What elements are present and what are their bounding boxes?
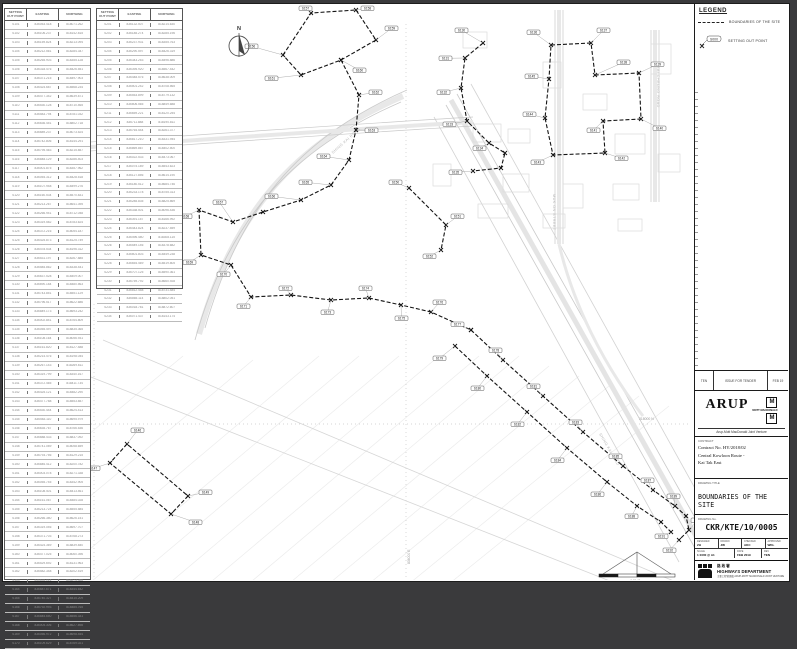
table-row: S129836637.528818409.007 (5, 272, 90, 281)
table-cell: 836319.799 (28, 373, 60, 376)
table-cell: S104 (5, 50, 28, 53)
table-row: S233836018.781818872.607 (97, 304, 182, 313)
table-cell: 818779.132 (151, 94, 182, 97)
table-cell: S148 (5, 445, 28, 448)
table-cell: 818567.442 (151, 68, 182, 71)
table-cell: S109 (5, 95, 28, 98)
table-cell: S134 (5, 319, 28, 322)
table-cell: S146 (5, 427, 28, 430)
table-cell: 836265.903 (28, 59, 60, 62)
table-cell: 836654.469 (120, 262, 152, 265)
table-cell: S152 (5, 481, 28, 484)
table-row: S105836265.903818355.128 (5, 57, 90, 66)
table-cell: 818284.347 (59, 50, 90, 53)
table-row: S146836635.767818766.536 (5, 425, 90, 434)
table-cell: S139 (5, 364, 28, 367)
table-row: S150836846.412818200.782 (5, 460, 90, 469)
table-cell: S226 (97, 244, 120, 247)
table-row: S127836531.197818267.885 (5, 254, 90, 263)
table-cell: 836478.534 (28, 248, 60, 251)
table-cell: S155 (5, 508, 28, 511)
table-cell: 836477.342 (28, 95, 60, 98)
table-cell: S157 (5, 526, 28, 529)
table-cell: 836530.444 (28, 409, 60, 412)
table-row: S218836127.856818614.190 (97, 171, 182, 180)
signature-fields: DESIGNEDZH DRAWNJW CHECKEDAKC APPROVEDWK… (695, 538, 788, 560)
table-cell: 836659.221 (120, 112, 152, 115)
table-row: S221836285.835818825.869 (97, 198, 182, 207)
table-row: S145836583.110818695.979 (5, 416, 90, 425)
table-cell: S205 (97, 59, 120, 62)
table-cell: 836549.146 (120, 244, 152, 247)
table-row: S231836812.458818731.484 (97, 286, 182, 295)
table-cell: S115 (5, 149, 28, 152)
table-cell: 836425.121 (28, 391, 60, 394)
setting-out-tag-label: S177 (454, 323, 462, 327)
table-cell: S125 (5, 239, 28, 242)
table-cell: 818415.209 (59, 597, 90, 600)
table-cell: S141 (5, 382, 28, 385)
table-row: S126836478.534818196.312 (5, 245, 90, 254)
table-row: S228836654.469818519.805 (97, 260, 182, 269)
table-cell: S168 (5, 624, 28, 627)
table-row: S234836071.437818143.174 (97, 313, 182, 322)
table-cell: 818639.871 (59, 95, 90, 98)
table-cell: 818198.044 (59, 355, 90, 358)
table-cell: 818129.215 (59, 454, 90, 457)
table-cell: S111 (5, 113, 28, 116)
setting-out-tag-label: S157 (302, 7, 310, 11)
table-cell: S120 (5, 194, 28, 197)
table-row: S123836319.582818783.624 (5, 218, 90, 227)
setting-out-tag-label: S158 (364, 7, 372, 11)
building-outline (583, 94, 607, 110)
table-cell: 818096.436 (151, 209, 182, 212)
table-row: S107836371.215818497.903 (5, 75, 90, 84)
title-block-panel: LEGEND BOUNDARIES OF THE SITE S000 SETTI… (694, 4, 788, 580)
joint-venture-line: Arup-Mott MacDonald Joint Venture (698, 428, 785, 434)
setting-out-tag-label: S184 (554, 459, 562, 463)
table-cell: 836106.237 (28, 32, 60, 35)
table-cell: 818825.869 (151, 200, 182, 203)
contract-number: Contract No. HY/2018/02 (698, 445, 785, 450)
scale-bar-segment (599, 574, 618, 577)
table-cell: S231 (97, 289, 120, 292)
table-cell: 818660.928 (151, 280, 182, 283)
table-row: S132836796.517818622.686 (5, 299, 90, 308)
table-cell: 818764.809 (59, 319, 90, 322)
table-row: S125836425.873818125.749 (5, 236, 90, 245)
table-cell: 836635.014 (28, 579, 60, 582)
table-cell: S163 (5, 579, 28, 582)
table-cell: 836865.114 (120, 297, 152, 300)
table-cell: 818344.642 (59, 588, 90, 591)
table-row: S204836290.597818426.319 (97, 48, 182, 57)
table-cell: 836160.534 (28, 194, 60, 197)
revision-date: FEB 19 (768, 371, 788, 390)
table-cell: S211 (97, 112, 120, 115)
table-row: S117836001.875818357.962 (5, 165, 90, 174)
table-cell: S221 (97, 200, 120, 203)
column-header: EASTING (119, 9, 151, 20)
table-cell: 818142.815 (59, 32, 90, 35)
checked-value: AKC (744, 543, 763, 547)
table-cell: 818125.749 (59, 239, 90, 242)
table-cell: 818402.500 (151, 147, 182, 150)
table-cell: S121 (5, 203, 28, 206)
table-cell: 836584.862 (28, 266, 60, 269)
setting-out-tag-label: S152 (426, 255, 434, 259)
building-outline (433, 164, 451, 186)
table-cell: S201 (97, 23, 120, 26)
table-cell: S143 (5, 400, 28, 403)
table-cell: 818357.962 (59, 167, 90, 170)
setting-out-tag-label: S140 (656, 127, 664, 131)
table-cell: S170 (5, 642, 28, 645)
table-row: S140836319.799818340.167 (5, 371, 90, 380)
table-cell: 836371.215 (28, 77, 60, 80)
table-cell: S147 (5, 436, 28, 439)
table-cell: S142 (5, 391, 28, 394)
table-row: S217836075.189818543.623 (97, 163, 182, 172)
table-cell: 818553.857 (59, 400, 90, 403)
table-row: S110836530.128818710.465 (5, 102, 90, 111)
table-cell: 818355.763 (151, 41, 182, 44)
table-cell: 836214.476 (28, 355, 60, 358)
reclamation-hatch-line (199, 356, 479, 580)
table-row: S206836395.920818567.442 (97, 65, 182, 74)
table-cell: 818802.051 (151, 297, 182, 300)
table-cell: S130 (5, 283, 28, 286)
table-row: S213836764.544818261.377 (97, 127, 182, 136)
setting-out-tag-label: S151 (454, 215, 462, 219)
table-cell: 818570.831 (59, 194, 90, 197)
table-cell: S136 (5, 337, 28, 340)
table-cell: S207 (97, 76, 120, 79)
setting-out-tag-label: S180 (474, 387, 482, 391)
setting-out-tag-label: S134 (476, 147, 484, 151)
table-cell: 818426.551 (59, 68, 90, 71)
column-header: SETTING OUT POINT (97, 9, 119, 20)
setting-out-tag-label: S142 (618, 157, 626, 161)
table-row: S102836106.237818142.815 (5, 30, 90, 39)
table-cell: S220 (97, 191, 120, 194)
table-cell: S113 (5, 131, 28, 134)
table-cell: S158 (5, 535, 28, 538)
table-cell: 836812.458 (120, 289, 152, 292)
designed-value: ZH (697, 543, 716, 547)
reclamation-hatch-line (79, 356, 359, 580)
setting-out-tag-label: S171 (240, 305, 248, 309)
table-cell: 836690.184 (28, 283, 60, 286)
setting-out-tag-label: S173 (324, 311, 332, 315)
table-row: S108836424.687818568.234 (5, 84, 90, 93)
table-row: S103836159.824818213.094 (5, 39, 90, 48)
scale-value: 1:1000 @ A1 (697, 553, 732, 557)
table-cell: 818839.840 (59, 544, 90, 547)
table-cell: 836185.274 (120, 32, 152, 35)
table-row: S211836659.221818120.254 (97, 109, 182, 118)
table-row: S163836635.014818273.086 (5, 577, 90, 586)
table-row: S201836132.507818214.630 (97, 21, 182, 30)
table-row: S209836553.899818779.132 (97, 92, 182, 101)
table-cell: S223 (97, 218, 120, 221)
table-row: S149836793.756818129.215 (5, 452, 90, 461)
table-row: S214836817.210818331.944 (97, 136, 182, 145)
table-cell: 836817.210 (120, 138, 152, 141)
building-outline (463, 32, 487, 48)
table-row: S157836319.046818697.707 (5, 523, 90, 532)
setting-out-tag-label: S145 (528, 75, 536, 79)
table-cell: 836266.941 (28, 212, 60, 215)
table-cell: S217 (97, 165, 120, 168)
table-cell: 818071.262 (59, 23, 90, 26)
setting-out-tag-label: S176 (436, 301, 444, 305)
table-cell: S156 (5, 517, 28, 520)
table-cell: 836285.835 (120, 200, 152, 203)
table-cell: S228 (97, 262, 120, 265)
table-cell: 818482.290 (59, 391, 90, 394)
table-cell: 836107.948 (28, 185, 60, 188)
building-outline (618, 219, 642, 231)
table-cell: 818731.484 (151, 289, 182, 292)
contract-label: CONTRACT (698, 439, 785, 443)
table-cell: 836018.781 (120, 306, 152, 309)
legend-title: LEGEND (699, 8, 785, 14)
table-cell: 818267.885 (59, 257, 90, 260)
reclamation-hatch-line (119, 356, 399, 580)
drawing-number: CKR/KTE/10/0005 (698, 523, 785, 532)
table-cell: 836530.128 (28, 104, 60, 107)
table-cell: 818060.396 (59, 553, 90, 556)
table-cell: 836108.164 (28, 337, 60, 340)
table-row: S143836477.788818553.857 (5, 398, 90, 407)
site-boundary-chain (110, 444, 188, 514)
table-cell: 818131.963 (59, 562, 90, 565)
table-cell: S234 (97, 315, 120, 318)
table-cell: 836003.078 (28, 472, 60, 475)
setting-out-tag-label: S187 (644, 479, 652, 483)
table-cell: 818127.488 (59, 346, 90, 349)
drawing-title-block: DRAWING TITLE BOUNDARIES OF THE SITE (695, 478, 788, 514)
table-cell: 818237.559 (151, 227, 182, 230)
table-cell: 836290.597 (120, 50, 152, 53)
table-cell: S153 (5, 490, 28, 493)
table-cell: 836161.820 (28, 346, 60, 349)
reclamation-hatch-line (159, 356, 439, 580)
table-cell: S110 (5, 104, 28, 107)
table-cell: 836343.253 (120, 59, 152, 62)
table-cell: 836846.412 (28, 463, 60, 466)
table-cell: 836319.046 (28, 526, 60, 529)
table-cell: S123 (5, 221, 28, 224)
table-row: S170836109.629818769.021 (5, 640, 90, 649)
site-boundary-chain (471, 330, 689, 540)
table-cell: 818622.686 (59, 301, 90, 304)
setting-out-tag-label: S150 (392, 181, 400, 185)
road (559, 244, 643, 416)
table-cell: S114 (5, 140, 28, 143)
setting-out-tag-label: S172 (282, 287, 290, 291)
table-row: S169836056.972818698.454 (5, 631, 90, 640)
table-cell: 818638.009 (151, 76, 182, 79)
table-cell: 818473.067 (151, 156, 182, 159)
table-cell: 836371.703 (28, 535, 60, 538)
drawing-number-block: DRAWING No. CKR/KTE/10/0005 (695, 514, 788, 538)
table-row: S220836233.178818755.313 (97, 189, 182, 198)
table-cell: 818200.782 (59, 463, 90, 466)
table-cell: S129 (5, 275, 28, 278)
table-cell: S222 (97, 209, 120, 212)
table-cell: 818215.857 (59, 149, 90, 152)
table-cell: 836424.687 (28, 86, 60, 89)
table-2-body: S201836132.507818214.630S202836185.27481… (97, 21, 182, 322)
table-cell: 836425.873 (28, 239, 60, 242)
table-cell: S166 (5, 606, 28, 609)
table-cell: 818411.734 (59, 382, 90, 385)
table-cell: 818484.028 (59, 499, 90, 502)
table-cell: 836477.025 (28, 553, 60, 556)
table-cell: 818273.086 (59, 579, 90, 582)
setting-out-tag-label: S163 (368, 129, 376, 133)
table-cell: 818409.007 (59, 275, 90, 278)
building-outline (658, 154, 680, 172)
table-cell: S165 (5, 597, 28, 600)
table-cell: S229 (97, 271, 120, 274)
table-cell: 818378.682 (151, 244, 182, 247)
table-cell: S116 (5, 158, 28, 161)
table-row: S121836213.267818641.395 (5, 200, 90, 209)
table-row: S147836688.433818837.092 (5, 434, 90, 443)
table-cell: 818058.659 (59, 445, 90, 448)
table-cell: 836742.806 (28, 140, 60, 143)
table-cell: 818269.611 (59, 364, 90, 367)
site-boundary-chain (283, 10, 376, 75)
table-cell: S124 (5, 230, 28, 233)
table-row: S168836004.306818627.898 (5, 622, 90, 631)
table-cell: 818073.524 (59, 131, 90, 134)
table-cell: 836213.724 (28, 508, 60, 511)
table-cell: S210 (97, 103, 120, 106)
road (73, 370, 643, 580)
table-cell: S218 (97, 174, 120, 177)
table-cell: 818556.331 (59, 615, 90, 618)
table-cell: S204 (97, 50, 120, 53)
table-cell: 818196.312 (59, 248, 90, 251)
table-row: S227836601.803818449.238 (97, 251, 182, 260)
table-cell: S169 (5, 633, 28, 636)
table-cell: S209 (97, 94, 120, 97)
table-row: S113836689.237818073.524 (5, 129, 90, 138)
table-row: S134836002.841818764.809 (5, 317, 90, 326)
table-cell: S140 (5, 373, 28, 376)
table-cell: 836711.888 (120, 121, 152, 124)
setting-out-tag-label: S148 (192, 521, 200, 525)
table-cell: 818519.805 (151, 262, 182, 265)
table-cell: 836743.851 (28, 292, 60, 295)
arup-logo: ARUP (706, 397, 749, 413)
table-row: S154836161.067818484.028 (5, 496, 90, 505)
table-cell: 818835.365 (59, 328, 90, 331)
table-cell: S224 (97, 227, 120, 230)
table-row: S106836318.476818426.551 (5, 66, 90, 75)
table-cell: 818342.905 (59, 481, 90, 484)
setting-out-tag-label: S182 (514, 423, 522, 427)
table-cell: 836707.125 (120, 271, 152, 274)
table-cell: S112 (5, 122, 28, 125)
setting-out-tag-label: S131 (442, 57, 450, 61)
consultant-logo-block: ARUP M MOTT MACDONALD M Arup-Mott MacDon… (695, 390, 788, 436)
table-cell: 836477.788 (28, 400, 60, 403)
table-cell: 836212.561 (28, 50, 60, 53)
table-row: S151836003.078818271.338 (5, 469, 90, 478)
table-cell: 818166.992 (151, 218, 182, 221)
table-cell: 836796.517 (28, 301, 60, 304)
table-cell: 818056.931 (59, 337, 90, 340)
table-row: S210836606.565818849.688 (97, 101, 182, 110)
table-cell: 836075.189 (120, 165, 152, 168)
table-cell: S150 (5, 463, 28, 466)
table-cell: 818769.021 (59, 642, 90, 645)
table-cell: 836004.306 (28, 624, 60, 627)
setting-out-tag-label: S136 (530, 31, 538, 35)
table-row: S124836372.216818054.187 (5, 227, 90, 236)
table-cell: 818308.115 (151, 236, 182, 239)
table-cell: 836002.841 (28, 319, 60, 322)
table-row: S160836477.025818060.396 (5, 550, 90, 559)
road-name-label: MUK ON STREET (552, 194, 556, 231)
drawing-title: BOUNDARIES OF THE SITE (698, 493, 785, 509)
boundary-vertex-marker (659, 520, 663, 524)
table-cell: S167 (5, 615, 28, 618)
contract-area: Kai Tak East (698, 460, 785, 465)
table-cell: S214 (97, 138, 120, 141)
table-cell: 818449.238 (151, 253, 182, 256)
setting-out-tag-label: S149 (202, 491, 210, 495)
road (451, 100, 701, 545)
table-cell: 836443.824 (120, 227, 152, 230)
table-cell: 818543.623 (151, 165, 182, 168)
table-row: S131836743.851818551.129 (5, 290, 90, 299)
setting-out-tag-label: S161 (268, 77, 276, 81)
table-cell: 836636.451 (28, 122, 60, 125)
table-cell: 818695.979 (59, 418, 90, 421)
table-cell: S160 (5, 553, 28, 556)
table-cell: 818766.536 (59, 427, 90, 430)
table-row: S153836108.401818413.461 (5, 487, 90, 496)
setting-out-tag-label: S139 (654, 63, 662, 67)
table-cell: 818331.944 (151, 138, 182, 141)
setting-out-tag-label: S169 (186, 261, 194, 265)
scale-bar-segment (656, 574, 675, 577)
table-cell: 818590.361 (151, 271, 182, 274)
table-cell: S138 (5, 355, 28, 358)
table-cell: 818614.190 (151, 174, 182, 177)
table-cell: 836022.533 (120, 156, 152, 159)
highways-department-block: 路 政 署 HIGHWAYS DEPARTMENT 主要工程管理處 ARUP-M… (695, 560, 788, 580)
drawing-number-label: DRAWING No. (698, 517, 785, 521)
table-row: S223836391.157818166.992 (97, 216, 182, 225)
table-cell: 836267.143 (28, 364, 60, 367)
table-cell: 818286.403 (59, 158, 90, 161)
building-outline (613, 184, 639, 200)
table-cell: 818698.454 (59, 633, 90, 636)
setting-out-tag-label: S138 (620, 61, 628, 65)
setting-out-tag-label: S164 (320, 155, 328, 159)
table-cell: 818285.196 (151, 32, 182, 35)
boundary-line-symbol (698, 22, 724, 23)
table-cell: 836233.178 (120, 191, 152, 194)
